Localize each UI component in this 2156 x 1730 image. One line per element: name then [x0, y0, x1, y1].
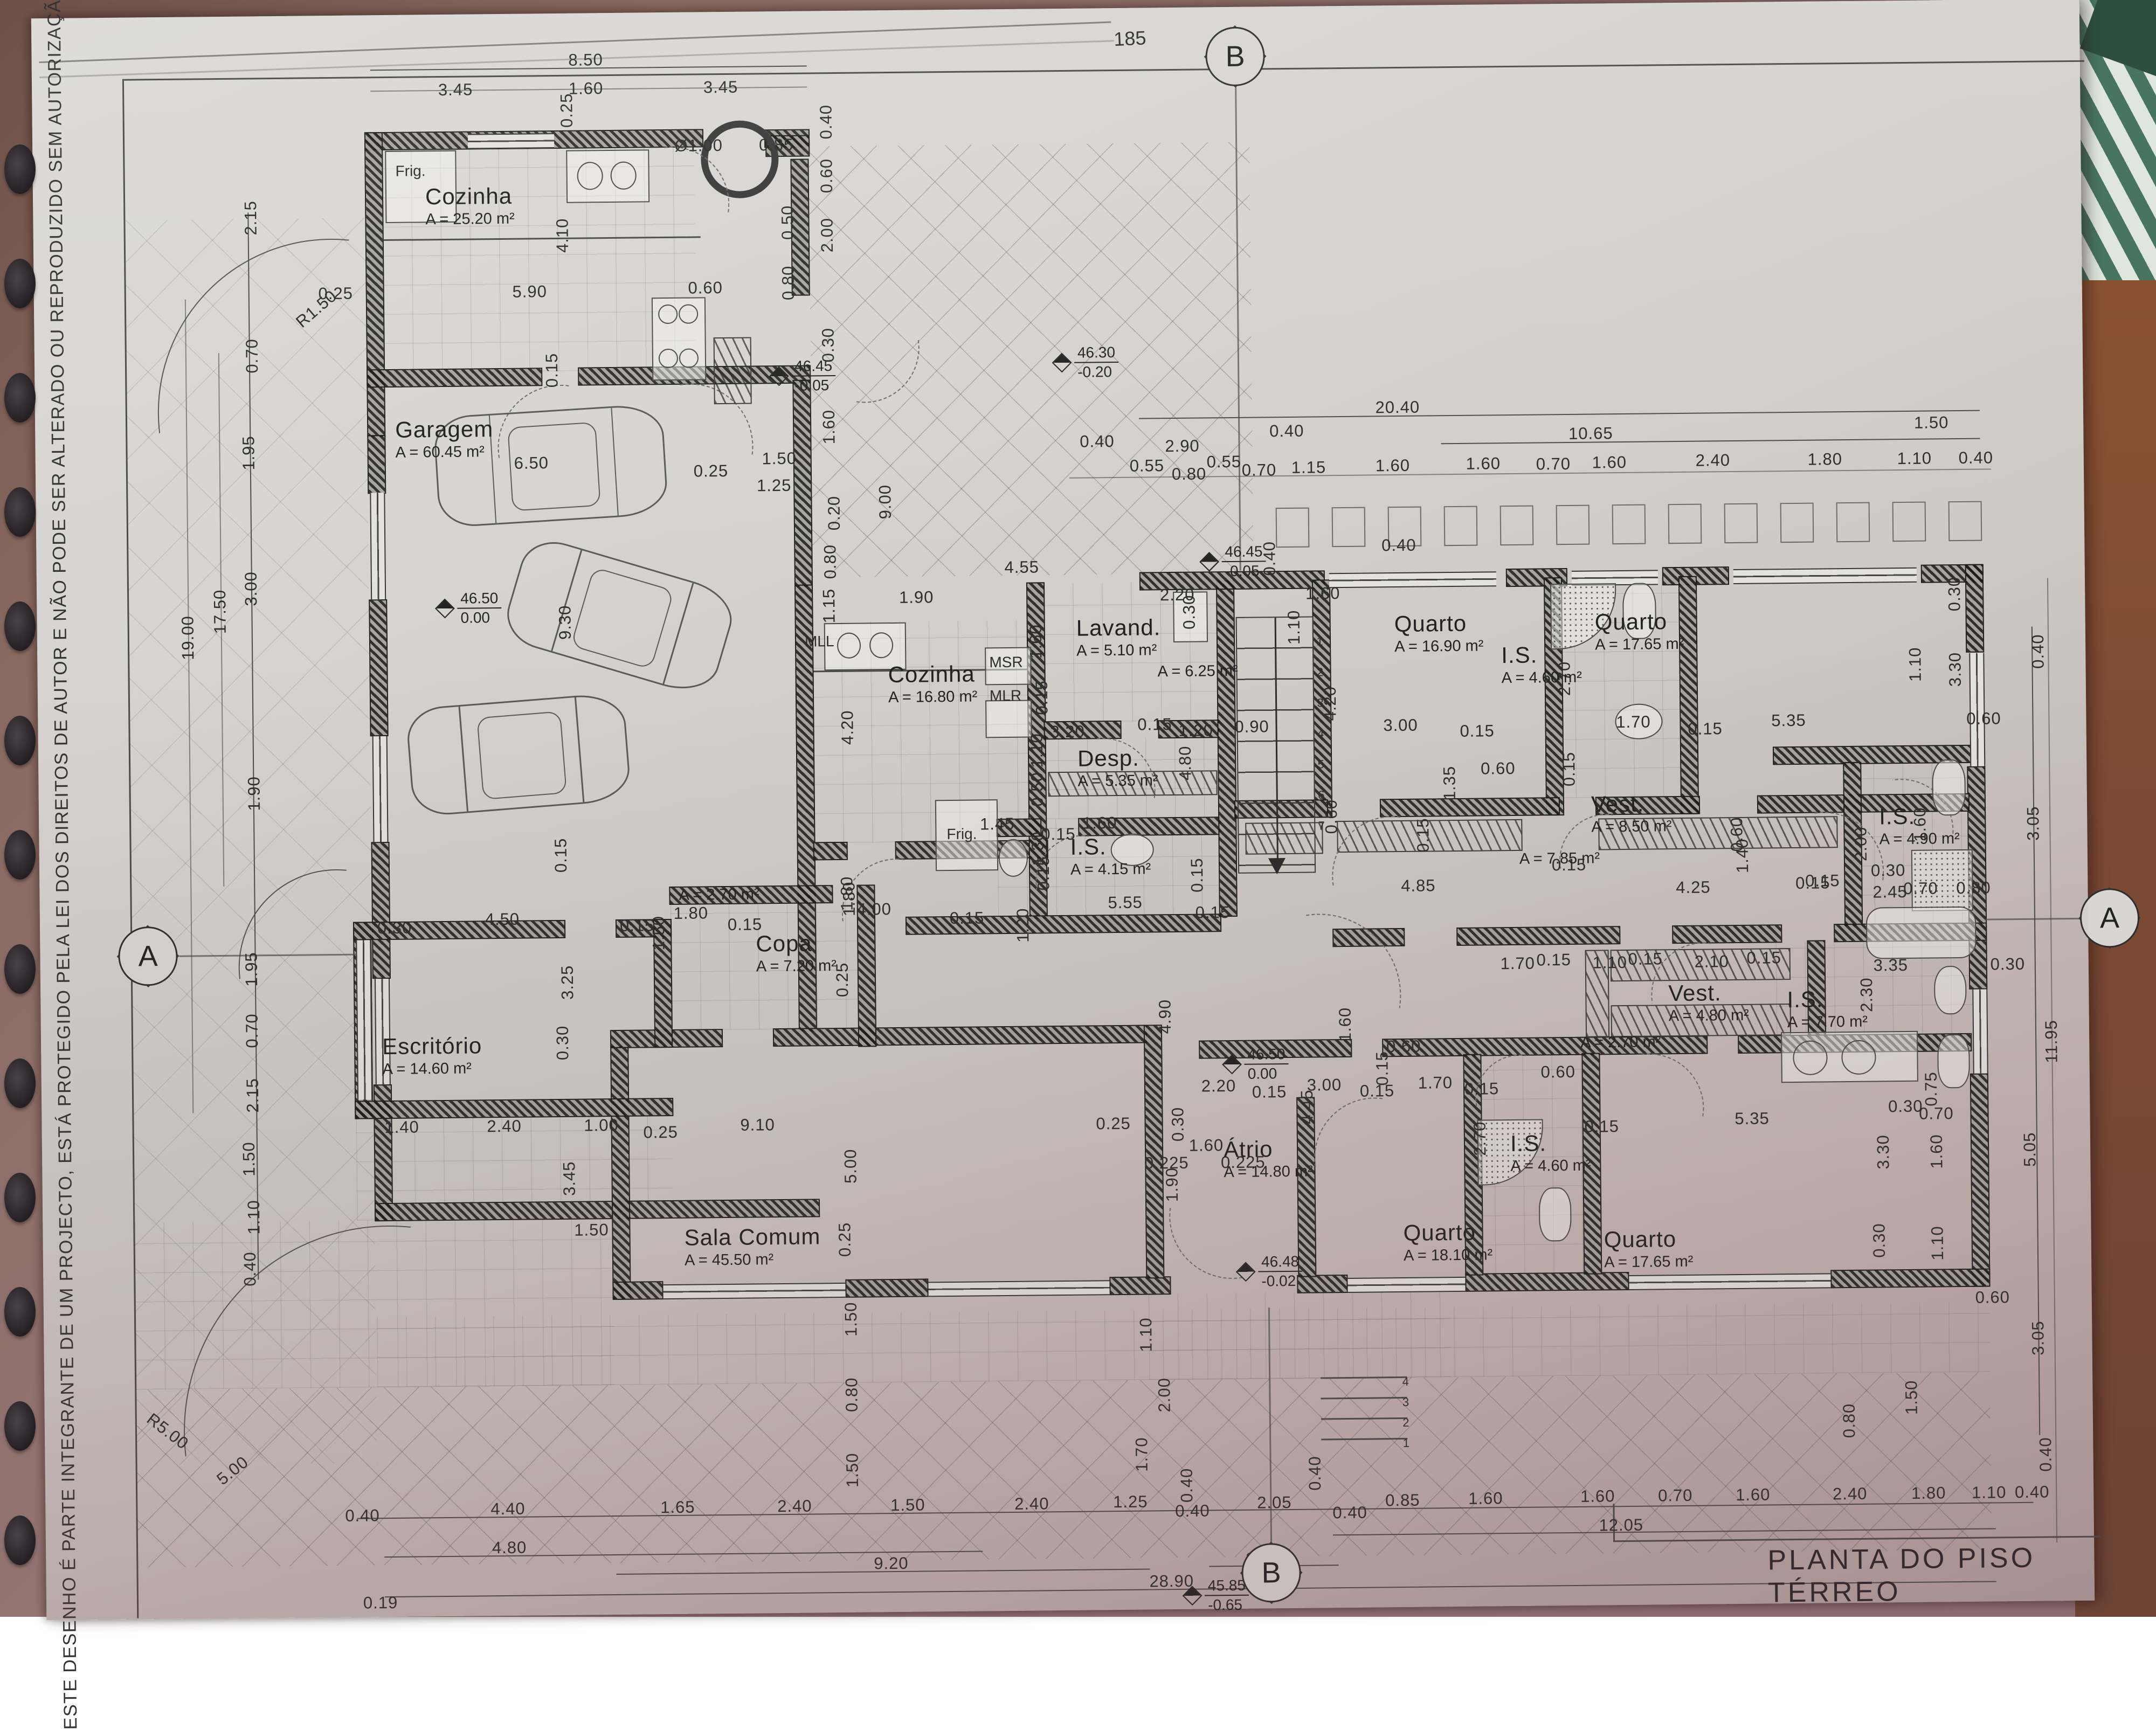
- plan-graphic: [1985, 918, 2082, 921]
- dimension-label: 0.15: [1137, 715, 1172, 735]
- dimension-label: 0.60: [1540, 1062, 1575, 1082]
- dimension-label: 2.00: [1155, 1378, 1174, 1413]
- dimension-label: 0.70: [1242, 460, 1277, 480]
- plan-graphic: [1673, 925, 1781, 943]
- room-label: I.S.A = 4.60 m²: [1510, 1130, 1591, 1175]
- dimension-label: 1.50: [890, 1496, 925, 1516]
- dimension-label: 1.10: [1136, 1317, 1156, 1352]
- dimension-label: 1.00: [584, 1116, 619, 1136]
- plan-graphic: [1139, 410, 1980, 419]
- dimension-label: 17.50: [210, 590, 230, 634]
- plan-graphic: [1441, 438, 1980, 445]
- plan-graphic: [1500, 506, 1534, 546]
- plan-graphic: [1444, 506, 1478, 546]
- dimension-label: 1.35: [1440, 766, 1460, 801]
- dimension-label: 4.55: [1004, 557, 1039, 577]
- dimension-label: 0.15: [542, 353, 562, 388]
- dimension-label: 3.45: [559, 1161, 579, 1196]
- dimension-label: 0.30: [1168, 1107, 1188, 1142]
- dimension-label: 0.80: [1840, 1403, 1860, 1438]
- dimension-label: 0.80: [820, 544, 840, 579]
- dimension-label: 1.60: [1026, 624, 1046, 659]
- room-label: QuartoA = 16.90 m²: [1394, 610, 1483, 656]
- dimension-label: 1.60: [1592, 453, 1627, 473]
- dimension-label: 1.70: [1500, 954, 1535, 974]
- dimension-label: 1.60: [1927, 1134, 1947, 1169]
- dimension-label: 0.30: [1888, 1097, 1923, 1117]
- dimension-label: 0.60: [688, 278, 723, 298]
- floor-plan-drawing: 8.503.451.603.450.25Ø1.000.850.400.600.5…: [0, 0, 2156, 1627]
- dimension-label: 0.15: [1464, 1079, 1499, 1099]
- dimension-label: 11.95: [2042, 1020, 2062, 1063]
- staircase: [1236, 617, 1316, 874]
- stair-number: 5: [1317, 757, 1324, 771]
- dimension-label: 2.15: [243, 1078, 263, 1113]
- dimension-label: 0.70: [1658, 1486, 1693, 1506]
- level-icon: [435, 599, 455, 619]
- dimension-label: 3.25: [558, 965, 578, 1000]
- dimension-label: 0.25: [694, 461, 729, 481]
- dimension-label: 3.05: [2023, 806, 2043, 841]
- room-label: A = 2.70 m²: [1580, 1032, 1661, 1051]
- dimension-label: 1.20: [1013, 908, 1033, 943]
- dimension-label: 1.60: [819, 410, 839, 445]
- level-icon: [1052, 353, 1072, 373]
- dimension-label: 0.25: [835, 1222, 855, 1257]
- dimension-label: 3.45: [703, 78, 738, 98]
- dimension-label: 4.80: [1176, 745, 1196, 780]
- dimension-label: 4.00: [856, 899, 892, 919]
- dimension-label: 5.35: [1735, 1109, 1770, 1129]
- dimension-label: 0.70: [1536, 454, 1571, 474]
- dimension-label: 1.10: [1905, 647, 1925, 682]
- section-circle: A: [2079, 888, 2139, 948]
- dimension-label: 1.40: [384, 1117, 419, 1137]
- level-icon: [1222, 1055, 1242, 1075]
- entry-grid: [1149, 1291, 1452, 1380]
- dimension-label: 5.00: [841, 1148, 861, 1184]
- binding-hole: [4, 373, 36, 423]
- toilet-460b: [1539, 1187, 1572, 1242]
- room-label: I.S.A = 4.90 m²: [1879, 803, 1960, 848]
- dimension-label: 1.50: [1902, 1380, 1922, 1415]
- dimension-label: 1.60: [1376, 456, 1411, 476]
- binding-hole: [4, 944, 36, 994]
- stair-number: 2: [1402, 1416, 1409, 1430]
- plan-graphic: [658, 305, 678, 324]
- room-label: QuartoA = 17.65 m²: [1594, 608, 1684, 654]
- plan-graphic: [372, 736, 389, 842]
- dimension-label: 5.90: [512, 282, 547, 302]
- dimension-label: 1.90: [1162, 1167, 1182, 1202]
- plan-graphic: [2031, 627, 2040, 1435]
- binding-hole: [4, 1401, 36, 1451]
- plan-graphic: [1332, 507, 1366, 548]
- plan-graphic: [1793, 1040, 1828, 1075]
- dimension-label: 0.15: [1536, 950, 1571, 970]
- dimension-label: 2.00: [1851, 826, 1871, 861]
- dimension-label: 2.40: [1833, 1484, 1868, 1504]
- oven: [714, 337, 752, 405]
- dimension-label: 0.70: [243, 338, 262, 373]
- dimension-label: 0.40: [1177, 1468, 1197, 1503]
- plan-graphic: [1780, 503, 1814, 543]
- dimension-label: 0.15: [1688, 719, 1723, 739]
- dimension-label: 0.40: [2028, 634, 2048, 669]
- binding-hole: [4, 259, 36, 308]
- plan-graphic: [370, 493, 386, 599]
- dimension-label: 0.40: [2036, 1437, 2056, 1472]
- plan-graphic: [1966, 565, 1984, 652]
- dimension-label: 9.20: [874, 1554, 909, 1574]
- dimension-label: 1.70: [1616, 712, 1651, 732]
- plan-graphic: [928, 1280, 1109, 1297]
- dimension-label: 2.00: [817, 218, 837, 253]
- dimension-label: 1.10: [1972, 1483, 2007, 1503]
- dimension-label: 0.15: [1559, 752, 1579, 787]
- dimension-label: 0.40: [1332, 1503, 1367, 1523]
- plan-graphic: [1832, 1270, 1989, 1288]
- dimension-label: 2.40: [487, 1117, 522, 1137]
- plan-graphic: [613, 1282, 662, 1299]
- plan-graphic: [814, 843, 847, 860]
- dimension-label: 1.10: [1027, 733, 1047, 768]
- dimension-label: 0.15: [950, 908, 985, 928]
- dimension-label: 1.95: [241, 952, 261, 987]
- dimension-label: 0.60: [817, 158, 837, 193]
- dimension-label: 1.60: [1580, 1486, 1615, 1506]
- fixture-label: Frig.: [395, 162, 425, 180]
- car-3: [405, 692, 632, 818]
- fixture-label: MLR: [990, 687, 1021, 705]
- dimension-label: 0.20: [824, 496, 844, 531]
- plan-graphic: [372, 843, 390, 978]
- dimension-label: 5.35: [1771, 711, 1806, 731]
- dimension-label: 20.40: [1375, 398, 1420, 418]
- dimension-label: 0.40: [1269, 421, 1304, 441]
- plan-graphic: [1297, 1098, 1315, 1276]
- plan-graphic: [1971, 1075, 1989, 1286]
- dimension-label: 1.80: [673, 903, 708, 923]
- dimension-label: 1.90: [899, 587, 934, 607]
- plan-graphic: [659, 349, 678, 368]
- dimension-label: 0.80: [842, 1377, 862, 1412]
- dimension-label: 0.85: [1385, 1491, 1420, 1511]
- dimension-label: Ø1.00: [674, 136, 723, 156]
- plan-graphic: [356, 940, 372, 1099]
- plan-graphic: [1314, 1097, 1435, 1219]
- dimension-label: 8.50: [568, 50, 603, 70]
- plan-graphic: [1298, 1276, 1346, 1292]
- room-label: CozinhaA = 16.80 m²: [888, 661, 977, 707]
- stair-number: 4: [1402, 1375, 1409, 1389]
- dimension-label: 2.45: [1872, 882, 1908, 902]
- dimension-label: 3.45: [438, 80, 473, 100]
- dimension-label: 3.00: [241, 571, 261, 606]
- annotation-layer: 8.503.451.603.450.25Ø1.000.850.400.600.5…: [0, 0, 2148, 10]
- dimension-label: 1.10: [244, 1200, 264, 1235]
- stair-number: 3: [1317, 696, 1324, 710]
- dimension-label: 1.70: [1418, 1073, 1453, 1093]
- plan-graphic: [1841, 1040, 1876, 1075]
- dimension-label: 4.80: [492, 1538, 527, 1558]
- stair-number: 3: [1402, 1395, 1409, 1409]
- plan-graphic: [610, 162, 636, 190]
- room-label: QuartoA = 18.10 m²: [1403, 1219, 1492, 1265]
- dimension-label: 9.30: [555, 605, 575, 640]
- dimension-label: 1.15: [819, 589, 839, 624]
- dimension-label: 0.55: [1130, 456, 1165, 476]
- dimension-label: 0.15: [1252, 1082, 1287, 1102]
- dimension-label: 0.90: [1234, 717, 1269, 737]
- dimension-label: 0.30: [377, 918, 412, 938]
- dimension-label: 0.60: [1481, 759, 1516, 779]
- plan-graphic: [468, 133, 554, 149]
- dimension-label: 1.90: [244, 776, 264, 811]
- room-label: QuartoA = 17.65 m²: [1604, 1226, 1693, 1272]
- plan-graphic: [1466, 1273, 1628, 1291]
- plan-graphic: [1145, 1026, 1163, 1277]
- stair-number: 7: [1318, 819, 1325, 833]
- dimension-label: 0.15: [1196, 903, 1231, 923]
- level-marker: 46.500.00: [1225, 1046, 1289, 1082]
- dimension-label: 0.30: [1869, 1223, 1889, 1258]
- dimension-label: 1.50: [841, 1302, 861, 1337]
- dimension-label: 3.30: [1874, 1134, 1894, 1170]
- plan-graphic: [1347, 1277, 1465, 1293]
- dimension-label: 1.60: [1336, 1007, 1356, 1042]
- binding-hole: [4, 1516, 36, 1565]
- binding-hole: [4, 830, 36, 880]
- dimension-label: 1.10: [1927, 1226, 1947, 1261]
- binding-hole: [4, 1173, 36, 1222]
- dimension-label: 3.05: [2028, 1320, 2048, 1355]
- dimension-label: 0.40: [1175, 1501, 1210, 1521]
- room-label: GaragemA = 60.45 m²: [395, 416, 494, 462]
- dimension-label: 9.10: [740, 1115, 775, 1135]
- dimension-label: 0.25: [1096, 1114, 1131, 1134]
- dimension-label: 1.50: [1914, 413, 1949, 433]
- dimension-label: 0.15: [1413, 818, 1433, 853]
- drawing-title: PLANTA DO PISO TÉRREO: [1767, 1540, 2156, 1609]
- dimension-label: 2.40: [1695, 451, 1730, 470]
- plan-graphic: [1733, 568, 1917, 584]
- dimension-label: 1.10: [1284, 610, 1304, 645]
- dimension-label: 1.60: [1305, 584, 1340, 604]
- plan-graphic: [1972, 989, 1988, 1074]
- dimension-label: 6.50: [514, 453, 549, 473]
- plan-graphic: [1556, 505, 1590, 545]
- fixture-label: MLL: [805, 633, 834, 651]
- dimension-label: 0.15: [1795, 873, 1830, 893]
- section-circle: A: [118, 926, 178, 986]
- dimension-label: 3.00: [1383, 716, 1418, 736]
- level-marker: 46.500.00: [438, 590, 502, 626]
- dimension-label: 0.40: [345, 1506, 380, 1526]
- dimension-label: 4.40: [490, 1499, 526, 1519]
- room-label: A = 2.70 m²: [679, 884, 759, 904]
- dimension-label: 0.15: [1460, 721, 1495, 741]
- level-icon: [1183, 1586, 1203, 1606]
- dimension-label: 3.20: [1050, 722, 1085, 742]
- dimension-label: 1.95: [239, 435, 259, 470]
- dimension-label: 19.00: [178, 615, 198, 660]
- plan-graphic: [1593, 1053, 1704, 1164]
- dimension-label: 2.15: [241, 200, 261, 236]
- dimension-label: 2.40: [777, 1497, 812, 1517]
- room-label: I.S.A = 4.15 m²: [1070, 833, 1151, 878]
- dimension-label: 2.70: [1470, 1121, 1490, 1156]
- dimension-label: 4.85: [1401, 876, 1436, 896]
- dimension-label: 1.50: [649, 916, 669, 951]
- level-marker: 46.30-0.20: [1055, 344, 1119, 380]
- dimension-label: 0.30: [1179, 594, 1199, 629]
- binding-hole: [4, 716, 36, 765]
- dimension-label: 0.15: [1034, 856, 1054, 891]
- dimension-label: 0.40: [1958, 448, 1993, 468]
- dimension-label: 4.25: [1676, 877, 1711, 897]
- dimension-label: 0.40: [1305, 1456, 1325, 1491]
- copyright-text: ESTE DESENHO É PARTE INTEGRANTE DE UM PR…: [43, 0, 81, 1730]
- fixture-label: Frig.: [946, 826, 977, 843]
- car-2: [499, 534, 740, 700]
- dimension-label: 1.60: [1189, 1136, 1224, 1155]
- fixture-label: MSR: [989, 654, 1023, 672]
- plan-graphic: [611, 1047, 630, 1298]
- plan-graphic: [1629, 1273, 1830, 1290]
- stair-number: 1: [1316, 634, 1323, 648]
- stair-number: 6: [1318, 788, 1325, 802]
- dimension-label: 1.25: [757, 476, 792, 496]
- section-circle: B: [1241, 1543, 1301, 1603]
- bathtub: [1866, 906, 1977, 959]
- dimension-label: 3.30: [1945, 652, 1965, 687]
- dimension-label: 4.20: [838, 710, 858, 745]
- dimension-label: 0.70: [1903, 878, 1938, 898]
- dimension-label: 0.80: [1172, 464, 1207, 484]
- dimension-label: 1.60: [1736, 1485, 1771, 1505]
- blueprint-paper: 8.503.451.603.450.25Ø1.000.850.400.600.5…: [31, 0, 2095, 1620]
- plan-graphic: [837, 633, 861, 659]
- binding-hole: [4, 144, 36, 194]
- plan-graphic: [1457, 927, 1619, 945]
- dimension-label: 0.80: [1956, 878, 1991, 898]
- dimension-label: 1.50: [762, 449, 797, 469]
- level-marker: 46.48-0.02: [1239, 1254, 1303, 1290]
- dimension-label: 10.65: [1568, 424, 1613, 444]
- dimension-label: 1.50: [842, 1452, 862, 1487]
- dimension-label: 0.40: [1080, 432, 1115, 452]
- dimension-label: 2.90: [1165, 437, 1200, 456]
- plan-graphic: [368, 436, 385, 493]
- bidet-770: [1934, 966, 1967, 1015]
- dimension-label: 4.45: [1297, 1089, 1317, 1124]
- dimension-label: 0.40: [816, 105, 836, 140]
- dimension-label: 4.90: [1155, 999, 1175, 1034]
- level-icon: [1236, 1262, 1256, 1282]
- dimension-label: 0.15: [1032, 680, 1052, 715]
- plan-graphic: [1892, 502, 1926, 542]
- dimension-label: 0.60: [1966, 709, 2001, 729]
- room-label: Vest.A = 8.50 m²: [1591, 791, 1672, 836]
- plan-graphic: [679, 348, 699, 368]
- room-label: A = 7.85 m²: [1519, 848, 1600, 868]
- stair-number: 1: [1403, 1436, 1410, 1450]
- plan-graphic: [1612, 504, 1646, 545]
- dimension-label: 3.35: [1874, 956, 1909, 975]
- binding-hole: [4, 601, 36, 651]
- dimension-label: 0.30: [553, 1026, 573, 1061]
- dimension-label: 0.15: [1746, 948, 1781, 968]
- plan-graphic: [370, 600, 387, 735]
- plan-graphic: [577, 162, 603, 190]
- plan-graphic: [1110, 1277, 1170, 1294]
- dimension-label: 0.15: [1628, 949, 1663, 969]
- plan-graphic: [1329, 571, 1496, 588]
- plan-graphic: [368, 369, 541, 386]
- plan-graphic: [1276, 508, 1310, 548]
- photo-of-floor-plan: 8.503.451.603.450.25Ø1.000.850.400.600.5…: [0, 0, 2156, 1617]
- dimension-label: 1.70: [1132, 1437, 1152, 1472]
- room-label: Vest.A = 4.80 m²: [1668, 980, 1749, 1025]
- dimension-label: 2.05: [1257, 1493, 1292, 1513]
- dimension-label: 1.20: [1178, 721, 1213, 741]
- dimension-label: 1.45: [980, 814, 1015, 834]
- binding-hole: [4, 1058, 36, 1108]
- level-icon: [769, 366, 789, 386]
- dimension-label: 0.80: [778, 266, 798, 301]
- plan-graphic: [1948, 501, 1982, 542]
- room-label: CopaA = 7.20 m²: [756, 930, 837, 975]
- dimension-label: 1.80: [1807, 449, 1842, 469]
- section-circle: B: [1205, 26, 1265, 86]
- mlr-cabinet: [985, 700, 1032, 738]
- dimension-label: 1.40: [1733, 839, 1753, 874]
- dimension-label: 1.80: [1911, 1483, 1946, 1503]
- dimension-label: 0.60: [1975, 1288, 2010, 1307]
- plan-graphic: [1668, 504, 1702, 544]
- dimension-label: 0.15: [1372, 1051, 1392, 1086]
- dimension-label: 1.15: [1291, 458, 1326, 478]
- plan-graphic: [1217, 582, 1236, 916]
- plan-graphic: [1836, 502, 1870, 543]
- level-icon: [1199, 552, 1219, 572]
- room-label: CozinhaA = 25.20 m²: [425, 183, 515, 229]
- dimension-label: 9.00: [875, 485, 895, 520]
- dimension-label: 0.15: [1187, 857, 1207, 892]
- dimension-label: 1.10: [1592, 953, 1627, 973]
- dimension-label: 1.65: [660, 1498, 695, 1518]
- dimension-label: 1.50: [574, 1220, 609, 1240]
- plan-graphic: [663, 1283, 845, 1299]
- room-label: Desp.A = 5.35 m²: [1077, 745, 1158, 790]
- dimension-label: 0.25: [643, 1123, 678, 1143]
- room-label: Sala ComumA = 45.50 m²: [684, 1223, 821, 1269]
- dimension-label: 0.40: [240, 1251, 260, 1286]
- dimension-label: 1.80: [837, 876, 857, 911]
- dimension-label: 0.25: [557, 93, 577, 128]
- binding-hole: [4, 487, 36, 537]
- dimension-label: 0.50: [1027, 772, 1047, 807]
- plan-graphic: [869, 632, 893, 658]
- dimension-label: 5.05: [2020, 1132, 2040, 1167]
- dimension-label: 0.40: [1381, 536, 1416, 556]
- plan-graphic: [1724, 503, 1758, 544]
- room-label: EscritórioA = 14.60 m²: [382, 1033, 482, 1078]
- dimension-label: 1.60: [1468, 1489, 1503, 1508]
- dimension-label: 5.55: [1108, 893, 1143, 913]
- sidewalk-hatch: [136, 1372, 1992, 1568]
